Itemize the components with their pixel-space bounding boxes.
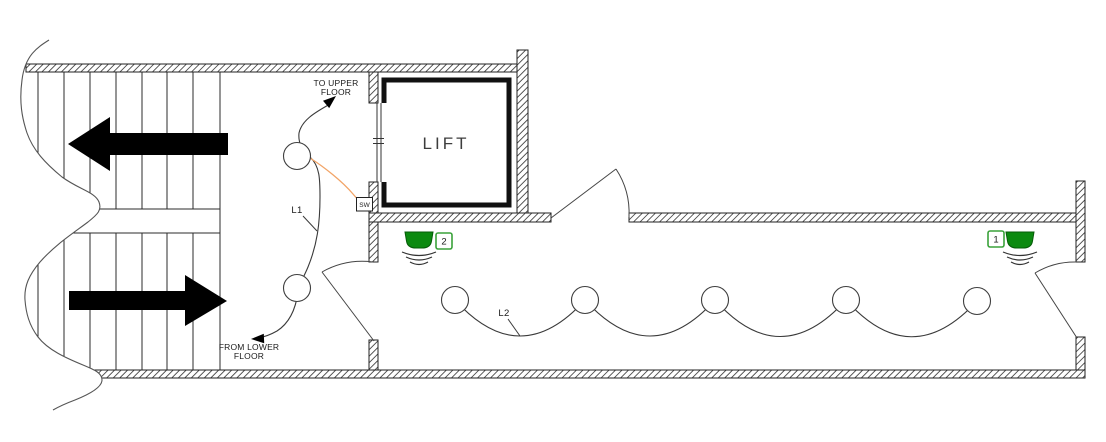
door-corridor-top (551, 169, 629, 218)
circuit-l1-wire (258, 104, 330, 338)
lift-room-label: LIFT (423, 134, 470, 153)
wall-lobby-door-jamb (369, 340, 378, 372)
lights-l1 (284, 143, 311, 302)
circuit-l1: L1 TO UPPER FLOOR FROM LOWER FLOOR (219, 78, 364, 361)
circuit-l2-label: L2 (498, 308, 509, 319)
light-fitting-icon (284, 143, 311, 170)
wall-corridor-top-left (369, 213, 551, 222)
escape-arrow-left-icon (68, 117, 228, 171)
light-fitting-icon (833, 287, 860, 314)
light-fitting-icon (284, 275, 311, 302)
switch-sw: SW (357, 198, 373, 212)
light-fitting-icon (442, 287, 469, 314)
motion-sensor-icon (405, 232, 433, 248)
wall-corridor-top-right (629, 213, 1076, 222)
light-fitting-icon (702, 287, 729, 314)
sensors-layer: 21 (402, 231, 1037, 265)
circuit-l1-leader (303, 216, 317, 231)
presence-sensor-2: 2 (402, 232, 452, 265)
presence-sensor-1: 1 (988, 231, 1037, 265)
circuit-l2: L2 (442, 287, 991, 337)
wall-lift-right (517, 50, 528, 222)
wall-bottom (85, 370, 1085, 378)
motion-sensor-icon (1006, 232, 1034, 248)
wall-top (26, 64, 518, 72)
circuit-l1-label: L1 (291, 205, 302, 216)
wall-right-upper (1076, 181, 1085, 262)
floor-plan-canvas: LIFT L1 TO UPPER FLOOR FROM LOWER FLOOR (0, 0, 1106, 442)
wall-right-stub (1076, 337, 1085, 372)
light-fitting-icon (572, 287, 599, 314)
sensor-waves-icon (402, 252, 436, 265)
lights-l2 (442, 287, 991, 315)
door-lobby-to-corridor (322, 261, 374, 341)
switch-label: SW (359, 202, 370, 209)
floor-plan: LIFT L1 TO UPPER FLOOR FROM LOWER FLOOR (0, 0, 1106, 442)
sensor-id-label: 2 (441, 237, 446, 248)
to-upper-floor-line2: FLOOR (321, 87, 351, 97)
circuit-l2-leader (508, 319, 520, 336)
sensor-waves-icon (1003, 252, 1037, 265)
from-lower-floor-line2: FLOOR (234, 351, 264, 361)
wall-lift-left-upper (369, 72, 378, 103)
lift-door (373, 103, 384, 182)
light-fitting-icon (964, 288, 991, 315)
door-corridor-right (1035, 262, 1077, 338)
escape-arrow-right-icon (69, 275, 227, 326)
switch-drop-wire (310, 158, 364, 207)
sensor-id-label: 1 (993, 235, 998, 246)
lift: LIFT (373, 80, 509, 205)
